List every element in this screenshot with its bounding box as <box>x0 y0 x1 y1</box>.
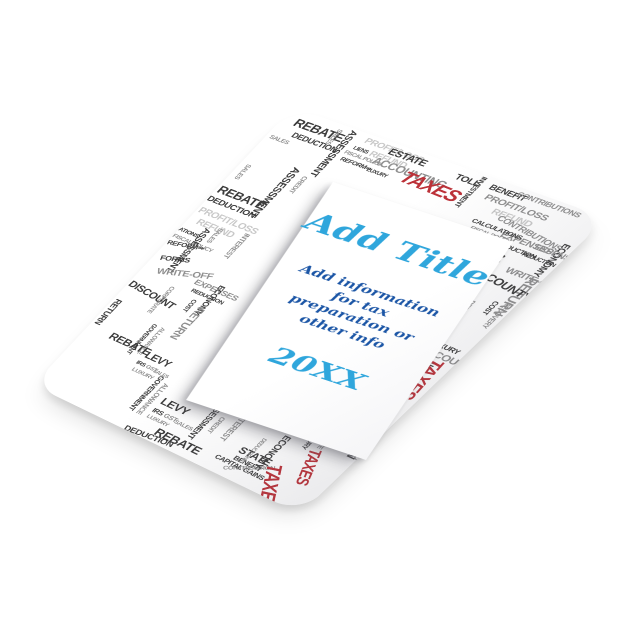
border-word: RETURN <box>92 297 123 325</box>
border-word: WRITE-OFF <box>155 268 214 282</box>
border-word: SALES <box>233 163 252 180</box>
border-word: TAXES <box>291 448 323 486</box>
border-word: SALES <box>267 134 290 145</box>
product-photo: REBATEDEDUCTIONSALESPROFIT/LOSSREFUNDLIE… <box>0 0 644 644</box>
border-word: FORMS <box>159 255 191 264</box>
